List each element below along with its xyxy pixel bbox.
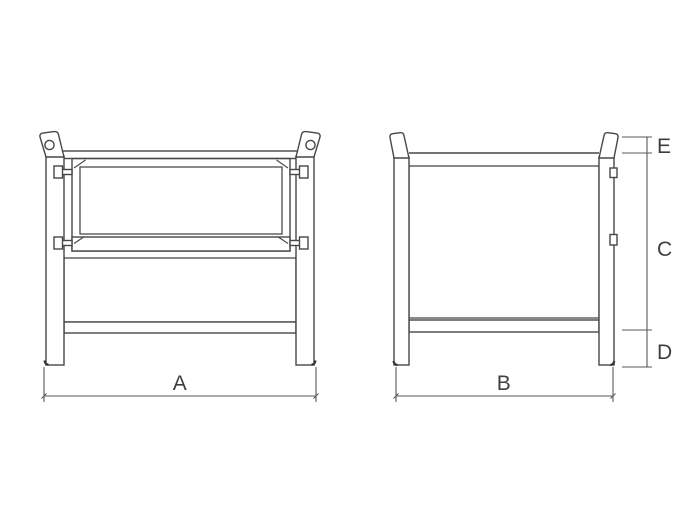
hinge-pin-shaft <box>290 241 300 246</box>
front-left-post <box>46 156 64 365</box>
side-right-post <box>599 157 614 365</box>
side-right-post-top <box>599 133 618 158</box>
front-lower-mesh-panel <box>64 258 296 322</box>
hinge-pin-head <box>54 237 63 249</box>
dimension-a: A <box>42 367 319 402</box>
front-elevation-view: A <box>40 132 320 402</box>
front-right-lifting-lug <box>296 132 320 157</box>
front-gate-bottom-rail <box>72 237 290 251</box>
drawing-svg: A B <box>0 0 700 525</box>
hinge-pin-shaft <box>62 241 72 246</box>
hinge-pin-head <box>54 166 63 178</box>
dim-label-c: C <box>657 238 673 261</box>
front-gate-mesh-panel <box>80 167 282 234</box>
front-top-rail <box>62 151 298 159</box>
technical-drawing-canvas: A B <box>0 0 700 525</box>
dim-label-a: A <box>173 372 188 395</box>
dimension-b: B <box>394 367 616 402</box>
dim-label-e: E <box>657 135 672 158</box>
side-mesh-panel <box>409 166 599 318</box>
side-bottom-rail <box>409 320 599 332</box>
side-elevation-view: B E C D <box>390 133 673 402</box>
dimension-chain-ecd: E C D <box>622 135 673 367</box>
hinge-pin-head <box>300 166 309 178</box>
side-hinge-pin-upper <box>610 168 617 178</box>
dim-label-d: D <box>657 341 673 364</box>
hinge-pin-head <box>300 237 309 249</box>
side-hinge-pin-lower <box>610 235 617 246</box>
side-left-post <box>394 157 409 365</box>
side-left-post-top <box>390 133 409 158</box>
front-bottom-rail <box>64 322 296 333</box>
hinge-pin-shaft <box>62 170 72 175</box>
hinge-pin-shaft <box>290 170 300 175</box>
dim-label-b: B <box>497 372 512 395</box>
front-left-lifting-lug <box>40 132 64 157</box>
front-right-post <box>296 156 314 365</box>
